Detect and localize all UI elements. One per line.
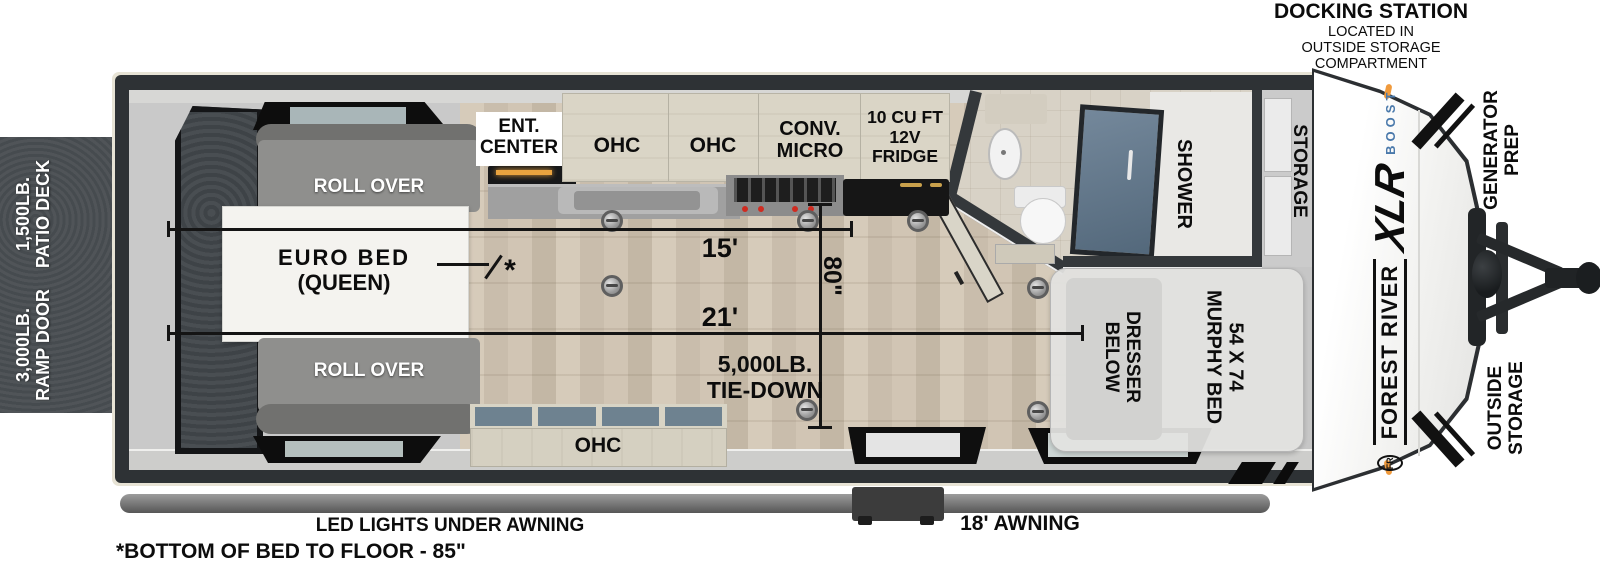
stove-knob	[742, 206, 748, 212]
dim-tick	[1081, 325, 1084, 341]
patio-deck-label: 1,500LB. PATIO DECK	[13, 139, 55, 289]
awning-bracket-foot	[858, 516, 872, 525]
dim-line-21ft	[168, 332, 1083, 335]
cabinet-divider	[668, 94, 669, 181]
cabinet-divider	[758, 94, 759, 181]
tie-down-anchor	[1027, 277, 1049, 299]
fridge-handle	[930, 183, 942, 187]
tie-down-rating-label: 5,000LB. TIE-DOWN	[685, 352, 845, 404]
dim-tick	[167, 325, 170, 341]
awning-length-label: 18' AWNING	[920, 512, 1120, 536]
dim-label-15ft: 15'	[680, 233, 760, 263]
cabinet-glass-panel	[538, 407, 595, 426]
dim-tick	[167, 221, 170, 237]
bathroom-shelf	[995, 244, 1055, 264]
stove-knob	[758, 206, 764, 212]
tie-down-anchor	[601, 275, 623, 297]
dim-label-21ft: 21'	[680, 302, 760, 332]
sofa-top-label: ROLL OVER	[269, 176, 469, 197]
rv-floorplan-diagram: DOCKING STATION LOCATED IN OUTSIDE STORA…	[0, 0, 1600, 566]
entry-door-step	[866, 433, 960, 457]
brand-crest-icon: FR	[1377, 455, 1403, 471]
dim-tick	[850, 221, 853, 237]
bed-note-asterisk: *	[498, 254, 522, 288]
cabinet-divider	[860, 94, 861, 181]
outside-storage-label: OUTSIDE STORAGE	[1485, 348, 1527, 468]
awning-tube	[120, 494, 1270, 513]
euro-bed-label: EURO BED (QUEEN)	[244, 246, 444, 295]
bathroom-vanity	[985, 94, 1047, 124]
fridge-label: 10 CU FT 12V FRIDGE	[862, 108, 948, 167]
brand-model: XLR	[1369, 160, 1411, 254]
brand-name: FOREST RIVER	[1373, 259, 1407, 446]
murphy-bed-label: 54 X 74 MURPHY BED	[1201, 270, 1247, 445]
docking-station-line: COMPARTMENT	[1268, 56, 1474, 72]
docking-station-line: OUTSIDE STORAGE	[1268, 40, 1474, 56]
bottom-ohc-label: OHC	[498, 434, 698, 458]
shower-glass-door	[1070, 104, 1164, 259]
bed-note-leader-line	[437, 263, 489, 266]
dresser-below-label: DRESSER BELOW	[1101, 292, 1143, 422]
window-top-glass	[290, 107, 406, 124]
docking-station-title: DOCKING STATION	[1268, 0, 1474, 24]
hitch-coupler-knob	[1576, 262, 1600, 294]
tie-down-anchor	[1027, 401, 1049, 423]
ohc-right-label: OHC	[670, 134, 756, 158]
stove-knob	[792, 206, 798, 212]
storage-label: STORAGE	[1288, 111, 1310, 231]
led-lights-label: LED LIGHTS UNDER AWNING	[250, 515, 650, 536]
dim-label-80in: 80"	[820, 244, 846, 308]
generator-prep-label: GENERATOR PREP	[1481, 80, 1523, 220]
hitch-jack	[1472, 250, 1502, 298]
conv-micro-label: CONV. MICRO	[762, 118, 858, 163]
bottom-ohc-glass-row	[470, 404, 727, 429]
ramp-door-label: 3,000LB. RAMP DOOR	[13, 270, 55, 420]
shower-stall	[1150, 92, 1252, 258]
sink-drain-dot	[1001, 150, 1006, 155]
fridge-handle	[900, 183, 922, 187]
dim-tick	[808, 426, 832, 429]
kitchen-sink-basin	[574, 191, 700, 210]
ent-center-label: ENT. CENTER	[476, 116, 562, 159]
stove-grate	[734, 178, 836, 202]
sofa-bottom-label: ROLL OVER	[269, 360, 469, 381]
ent-center-led-strip	[496, 170, 552, 175]
dim-tick	[808, 203, 832, 206]
window-bottom-left-glass	[285, 441, 403, 457]
brand-sub: BOOST	[1383, 89, 1398, 155]
brand-logo: FR FOREST RIVER XLR BOOST	[1358, 115, 1422, 445]
storage-divider-wall	[1252, 90, 1262, 267]
docking-station-note: DOCKING STATION LOCATED IN OUTSIDE STORA…	[1268, 0, 1474, 72]
dim-line-15ft	[168, 228, 852, 231]
docking-station-line: LOCATED IN	[1268, 24, 1474, 40]
cabinet-glass-panel	[602, 407, 659, 426]
cabinet-glass-panel	[665, 407, 722, 426]
cabinet-glass-panel	[475, 407, 532, 426]
sofa-bottom-bolster	[256, 404, 482, 434]
tie-down-anchor	[907, 210, 929, 232]
ohc-left-label: OHC	[572, 134, 662, 158]
shower-label: SHOWER	[1171, 119, 1195, 249]
bed-height-note: *BOTTOM OF BED TO FLOOR - 85"	[116, 540, 616, 564]
